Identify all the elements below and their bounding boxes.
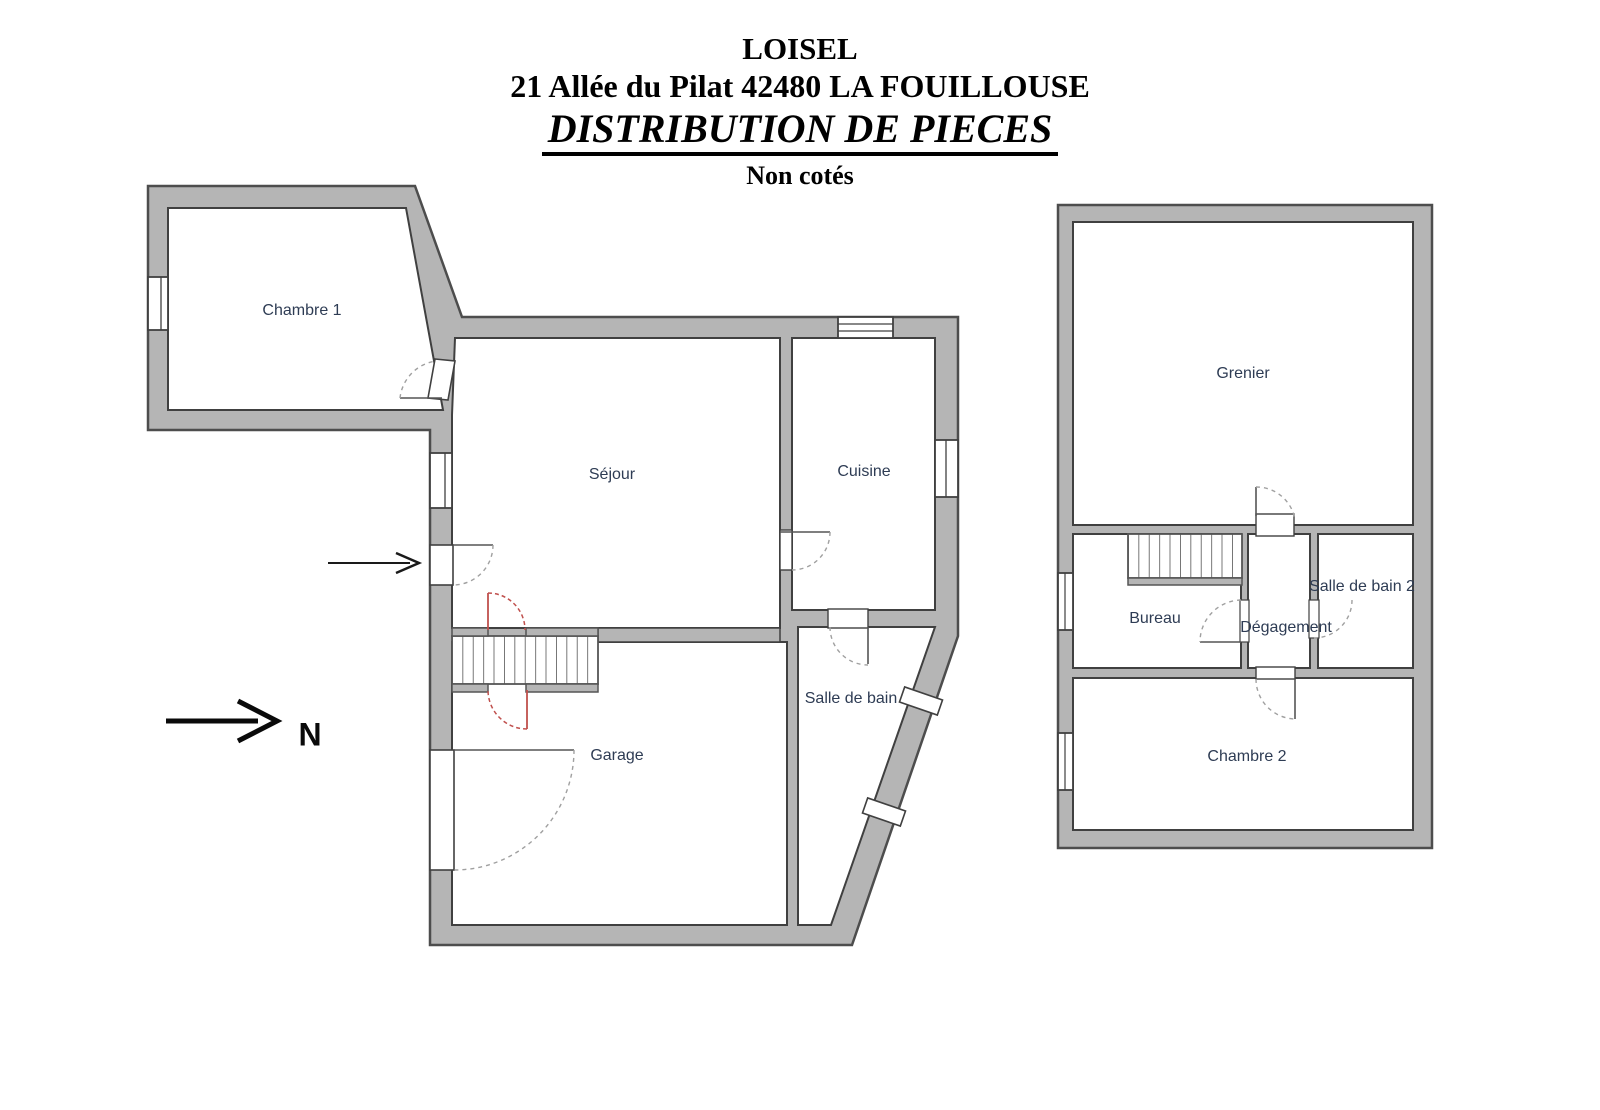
room-label-salle-de-bain-2: Salle de bain 2: [1309, 578, 1415, 596]
chambre-2-window: [1058, 733, 1073, 790]
room-label-salle-de-bain: Salle de bain: [805, 690, 898, 708]
stair-bottom-rail-right: [526, 684, 598, 692]
north-label: N: [298, 717, 321, 754]
room-label-bureau: Bureau: [1129, 610, 1181, 628]
cuisine-top-window: [838, 317, 893, 338]
entrance-arrow-icon: [328, 553, 419, 573]
upper-staircase: [1128, 534, 1242, 585]
floor-plan-svg: [0, 0, 1600, 1110]
stair-treads-lines: [452, 636, 598, 684]
north-arrow-icon: [166, 701, 277, 741]
sejour-garage-wall: [598, 628, 780, 642]
ground-floor-plan: [148, 186, 958, 945]
cuisine-right-window: [935, 440, 958, 497]
room-label-grenier: Grenier: [1216, 365, 1269, 383]
floor-plan-page: LOISEL 21 Allée du Pilat 42480 LA FOUILL…: [0, 0, 1600, 1110]
room-label-chambre-1: Chambre 1: [262, 302, 341, 320]
room-label-degagement: Dégagement: [1240, 619, 1332, 637]
stair-top-rail-right: [526, 628, 598, 636]
room-salle-de-bain-2-floor: [1318, 534, 1413, 668]
stair-bottom-rail-left: [452, 684, 488, 692]
ground-staircase: [452, 628, 598, 692]
room-degagement-floor: [1248, 534, 1310, 668]
room-label-garage: Garage: [590, 747, 643, 765]
chambre-1-window: [148, 277, 168, 330]
stair-top-rail-left: [452, 628, 488, 636]
room-label-sejour: Séjour: [589, 466, 635, 484]
entry-side-window: [430, 453, 452, 508]
room-label-chambre-2: Chambre 2: [1207, 748, 1286, 766]
bureau-window: [1058, 573, 1073, 630]
room-label-cuisine: Cuisine: [837, 463, 890, 481]
